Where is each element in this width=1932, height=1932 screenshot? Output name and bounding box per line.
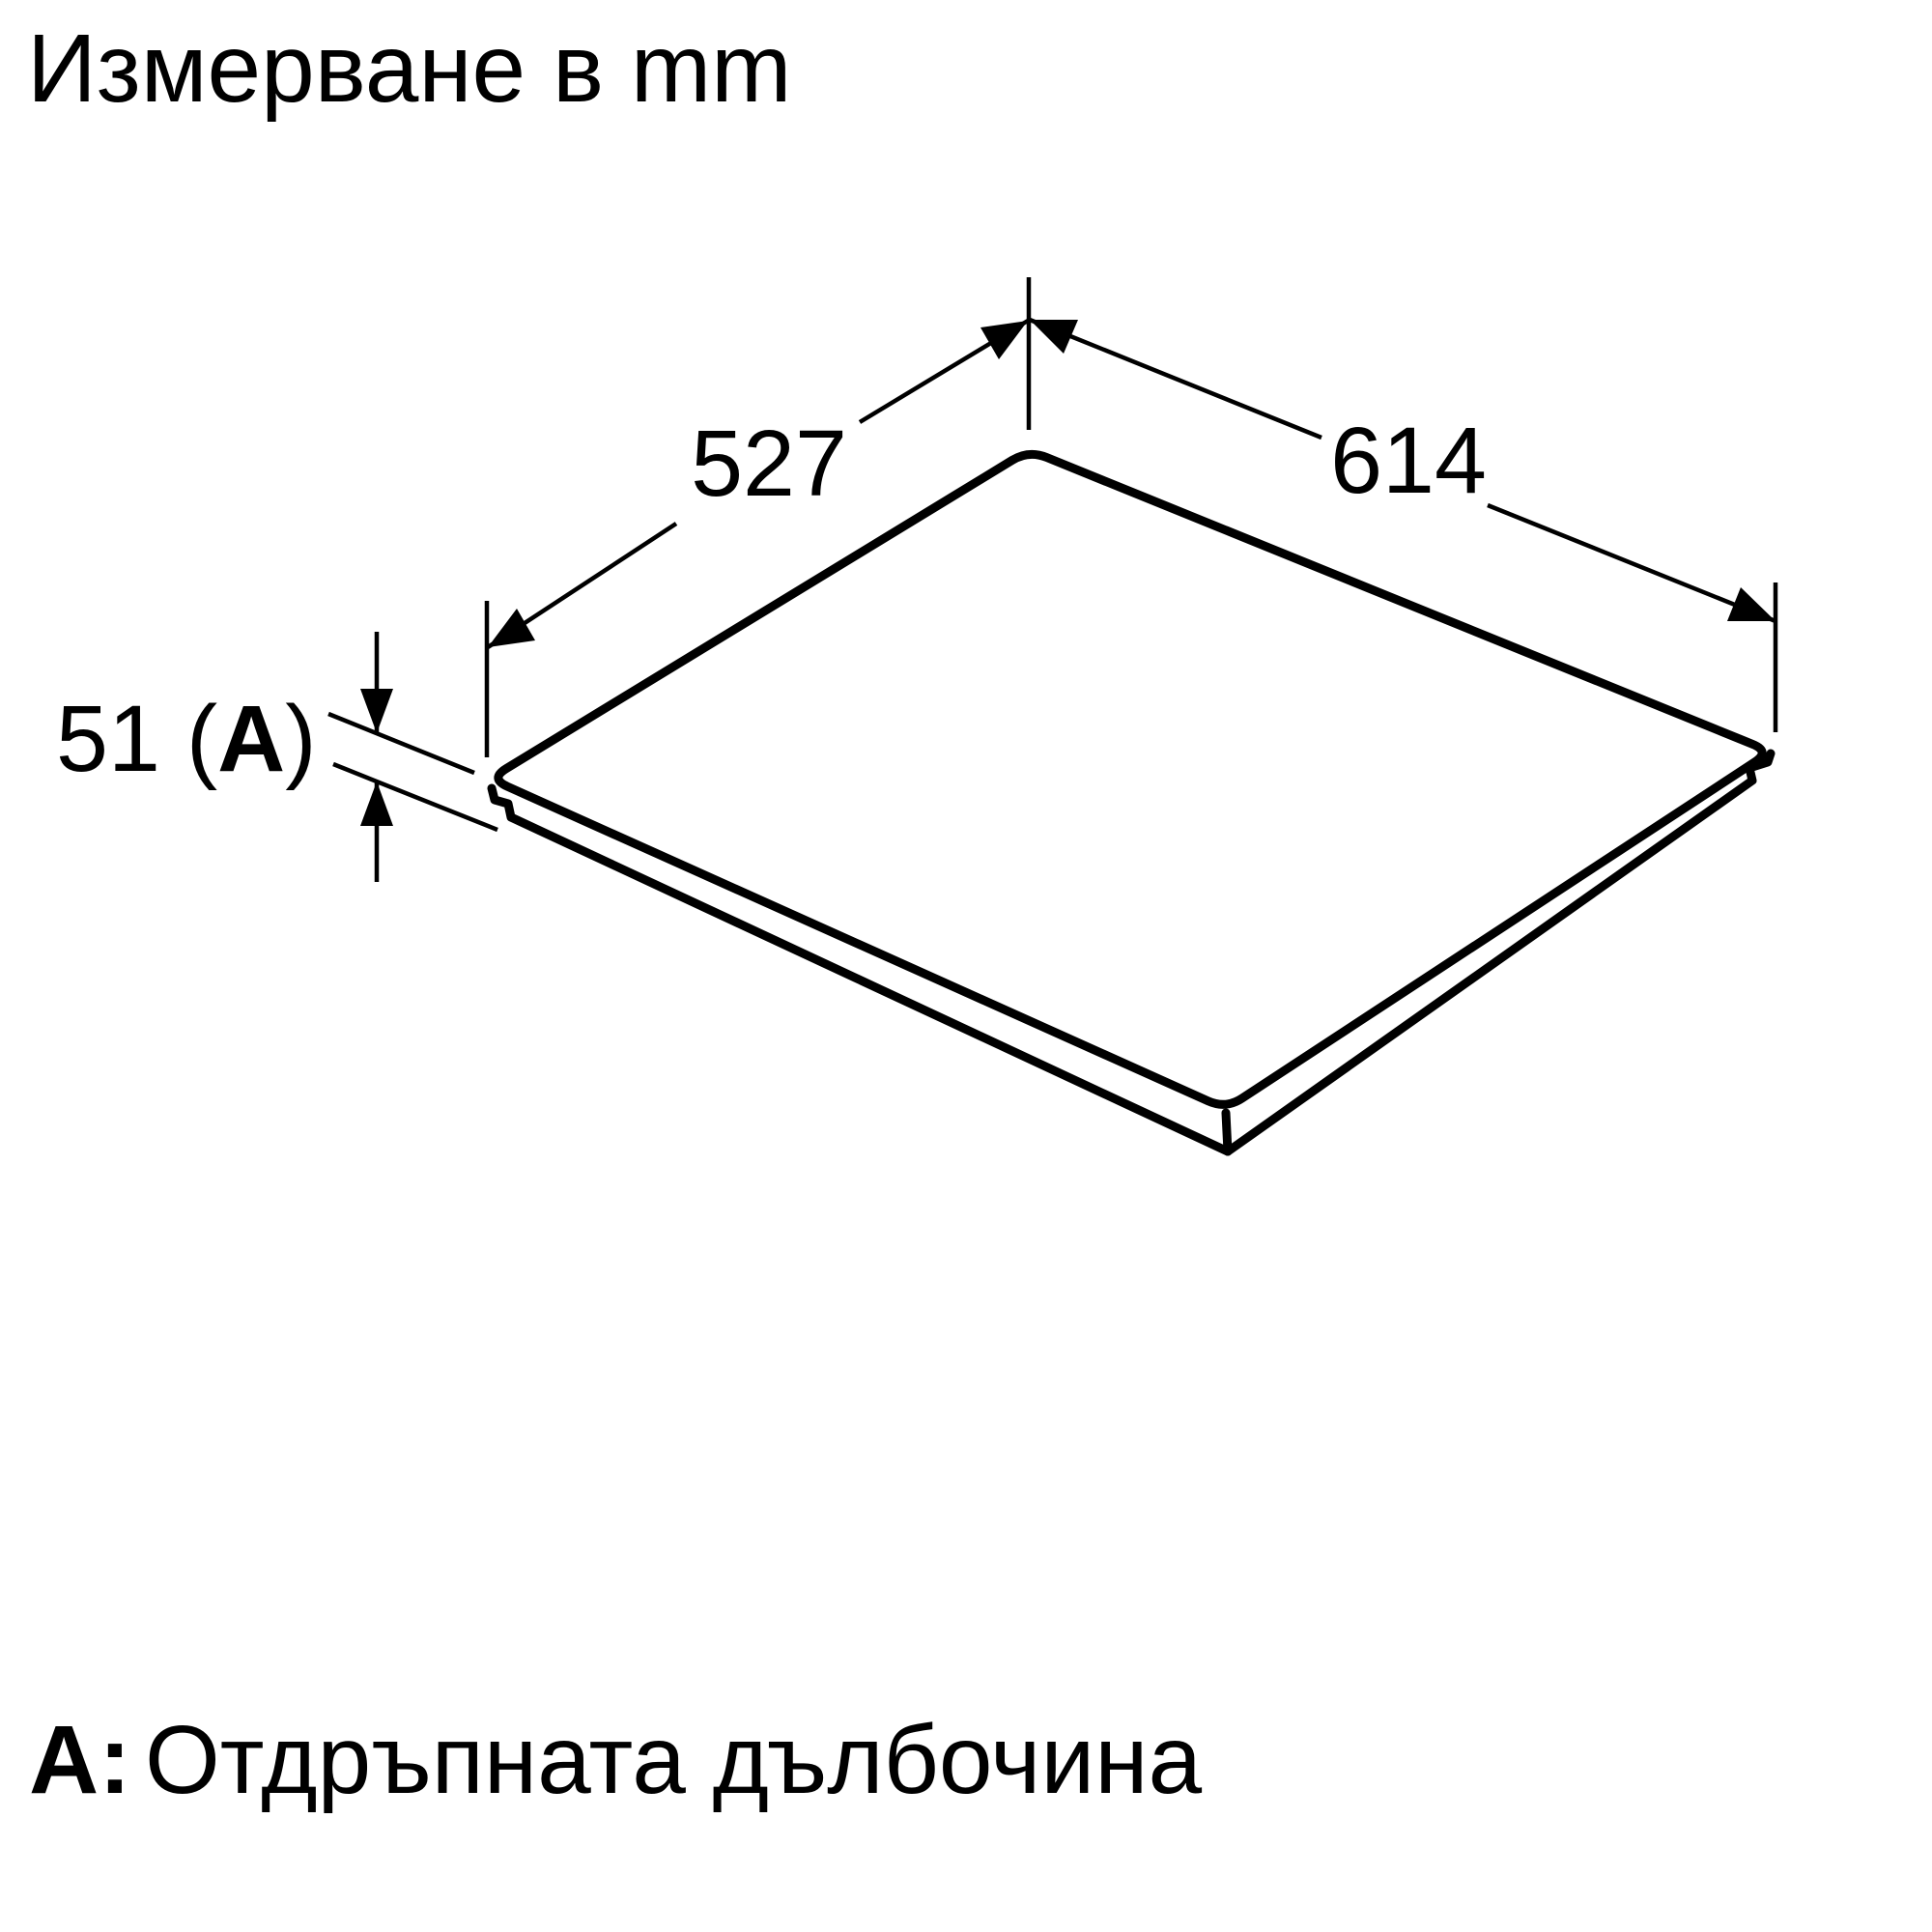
- dim-51-value: 51 (A): [56, 686, 317, 791]
- legend-text: Отдръпната дълбочина: [145, 1706, 1202, 1814]
- dim-51-prefix: 51 (: [56, 686, 217, 791]
- page-title: Измерване в mm: [27, 14, 791, 123]
- dim-51-key: A: [217, 686, 285, 791]
- dimension-diagram: Измерване в mm 527 614 51 (A) A:Отдр: [0, 0, 1932, 1932]
- legend: A:Отдръпната дълбочина: [29, 1706, 1202, 1814]
- extension-line-recess-top: [328, 714, 474, 773]
- dim-51-suffix: ): [285, 686, 316, 791]
- legend-key: A:: [29, 1706, 131, 1814]
- dim-527-value: 527: [691, 411, 847, 516]
- page: Измерване в mm 527 614 51 (A) A:Отдр: [0, 0, 1932, 1932]
- dim-614-value: 614: [1330, 408, 1487, 513]
- dim-614-arrowhead-top: [1030, 320, 1078, 354]
- dim-614-arrowhead-right: [1727, 587, 1776, 621]
- dim-614-line-upper: [1030, 320, 1321, 438]
- dim-527-arrowhead-top: [980, 321, 1028, 359]
- cooktop-top-surface: [498, 454, 1762, 1104]
- dim-527-arrowhead-bottom: [488, 609, 535, 647]
- dim-614-line-lower: [1488, 505, 1776, 621]
